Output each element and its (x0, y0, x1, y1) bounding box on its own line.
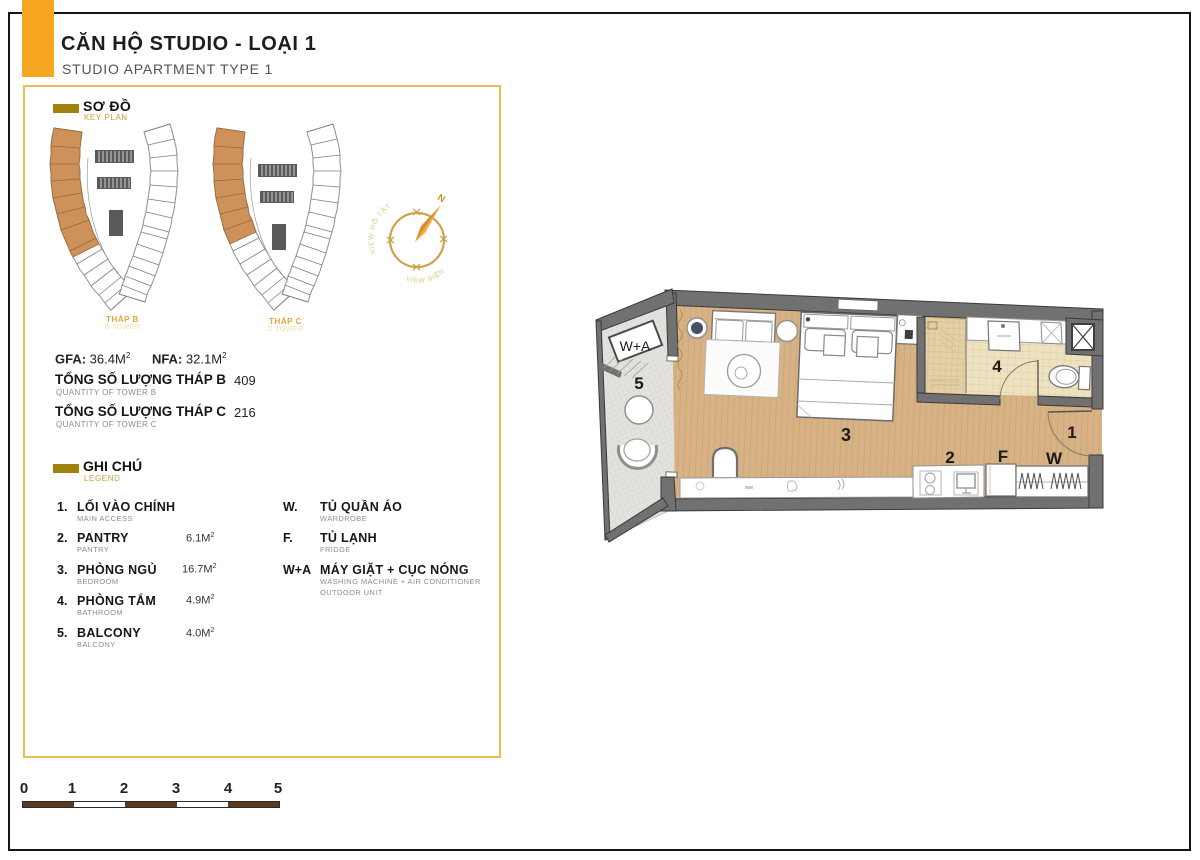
svg-text:N: N (435, 192, 447, 205)
svg-text:1: 1 (1067, 423, 1076, 442)
svg-text:5: 5 (634, 374, 643, 393)
svg-text:VIEW HỒ TÂY: VIEW HỒ TÂY (368, 202, 393, 255)
svg-text:VIEW BIỂN: VIEW BIỂN (405, 268, 446, 285)
svg-text:F: F (998, 447, 1008, 466)
svg-text:W: W (1046, 449, 1063, 468)
svg-text:3: 3 (841, 425, 851, 445)
svg-text:W+A: W+A (620, 338, 651, 354)
svg-text:4: 4 (992, 357, 1002, 376)
svg-text:2: 2 (945, 448, 954, 467)
